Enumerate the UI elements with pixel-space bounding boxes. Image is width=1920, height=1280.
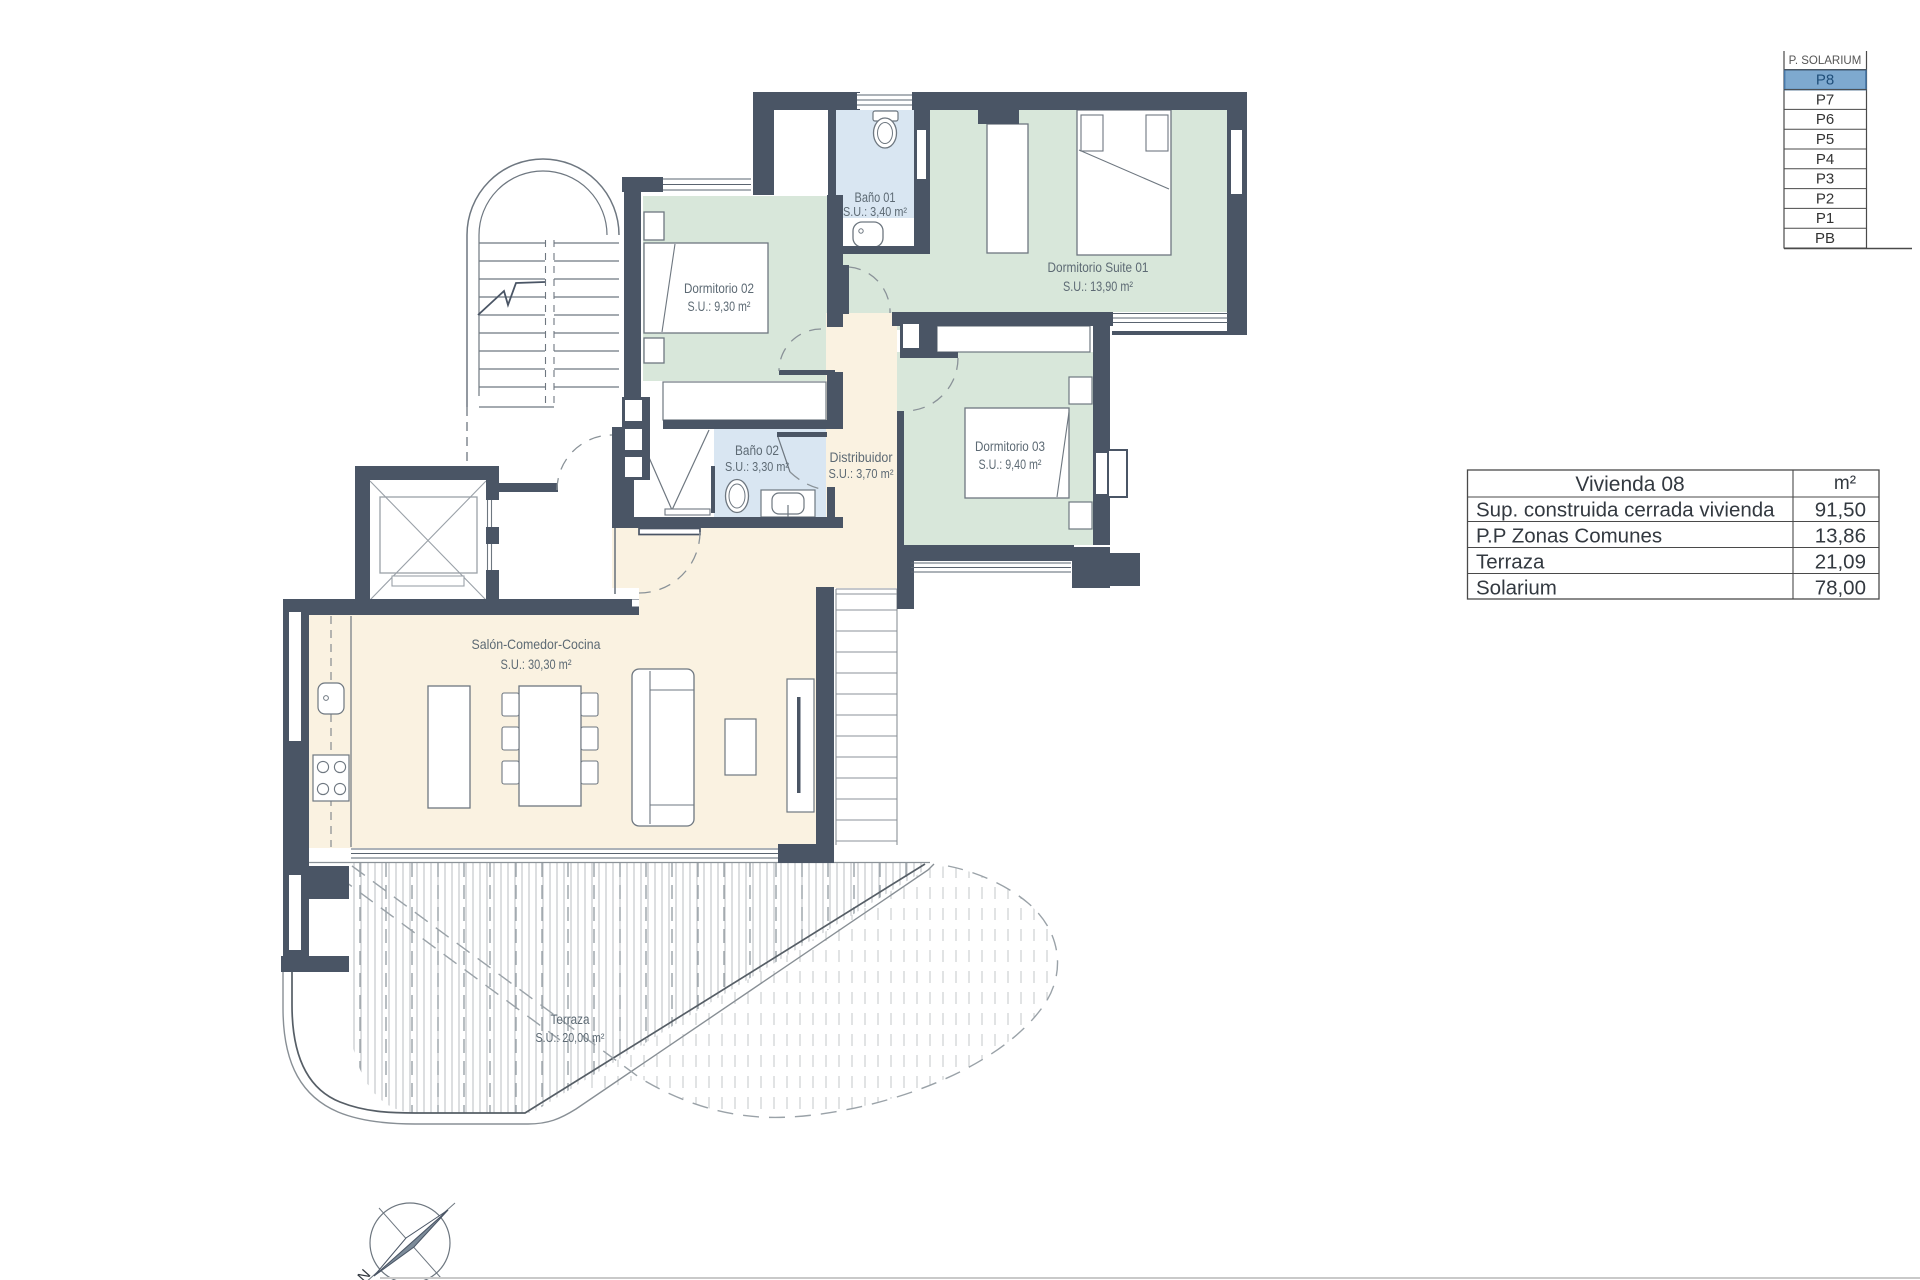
svg-text:S.U.: 3,30 m²: S.U.: 3,30 m² [725,459,790,474]
svg-text:Sup. construida cerrada vivien: Sup. construida cerrada vivienda [1476,499,1775,522]
svg-text:P4: P4 [1816,151,1834,168]
svg-text:Dormitorio 03: Dormitorio 03 [975,438,1045,454]
svg-text:Terraza: Terraza [551,1012,590,1027]
svg-text:S.U.: 9,30 m²: S.U.: 9,30 m² [688,299,751,314]
svg-text:S.U.: 20,00 m²: S.U.: 20,00 m² [536,1030,606,1045]
svg-text:S.U.: 9,40 m²: S.U.: 9,40 m² [979,457,1042,472]
svg-text:PB: PB [1815,230,1835,247]
svg-text:Baño 02: Baño 02 [735,443,779,458]
svg-text:P8: P8 [1816,72,1834,89]
svg-text:Baño 01: Baño 01 [855,190,896,205]
svg-text:S.U.: 3,70 m²: S.U.: 3,70 m² [829,466,895,481]
svg-text:m²: m² [1834,473,1856,494]
svg-text:P. SOLARIUM: P. SOLARIUM [1789,55,1862,67]
svg-text:Distribuidor: Distribuidor [830,450,893,465]
svg-text:S.U.: 13,90 m²: S.U.: 13,90 m² [1063,279,1133,294]
svg-text:Terraza: Terraza [1476,551,1545,574]
svg-text:Salón-Comedor-Cocina: Salón-Comedor-Cocina [472,636,601,652]
svg-text:P1: P1 [1816,210,1834,227]
svg-text:Dormitorio Suite 01: Dormitorio Suite 01 [1048,259,1149,275]
svg-text:P3: P3 [1816,171,1834,188]
svg-text:Solarium: Solarium [1476,577,1557,600]
svg-text:P2: P2 [1816,190,1834,207]
svg-text:P.P Zonas Comunes: P.P Zonas Comunes [1476,525,1662,548]
svg-text:P6: P6 [1816,111,1834,128]
svg-text:P5: P5 [1816,131,1834,148]
svg-text:P7: P7 [1816,91,1834,108]
svg-text:91,50: 91,50 [1815,499,1866,522]
svg-text:Dormitorio 02: Dormitorio 02 [684,280,754,296]
svg-text:Vivienda 08: Vivienda 08 [1575,473,1684,496]
svg-text:78,00: 78,00 [1815,577,1866,600]
svg-text:S.U.: 3,40 m²: S.U.: 3,40 m² [843,204,908,219]
svg-text:21,09: 21,09 [1815,551,1866,574]
svg-text:13,86: 13,86 [1815,525,1866,548]
svg-text:S.U.: 30,30 m²: S.U.: 30,30 m² [501,657,572,672]
